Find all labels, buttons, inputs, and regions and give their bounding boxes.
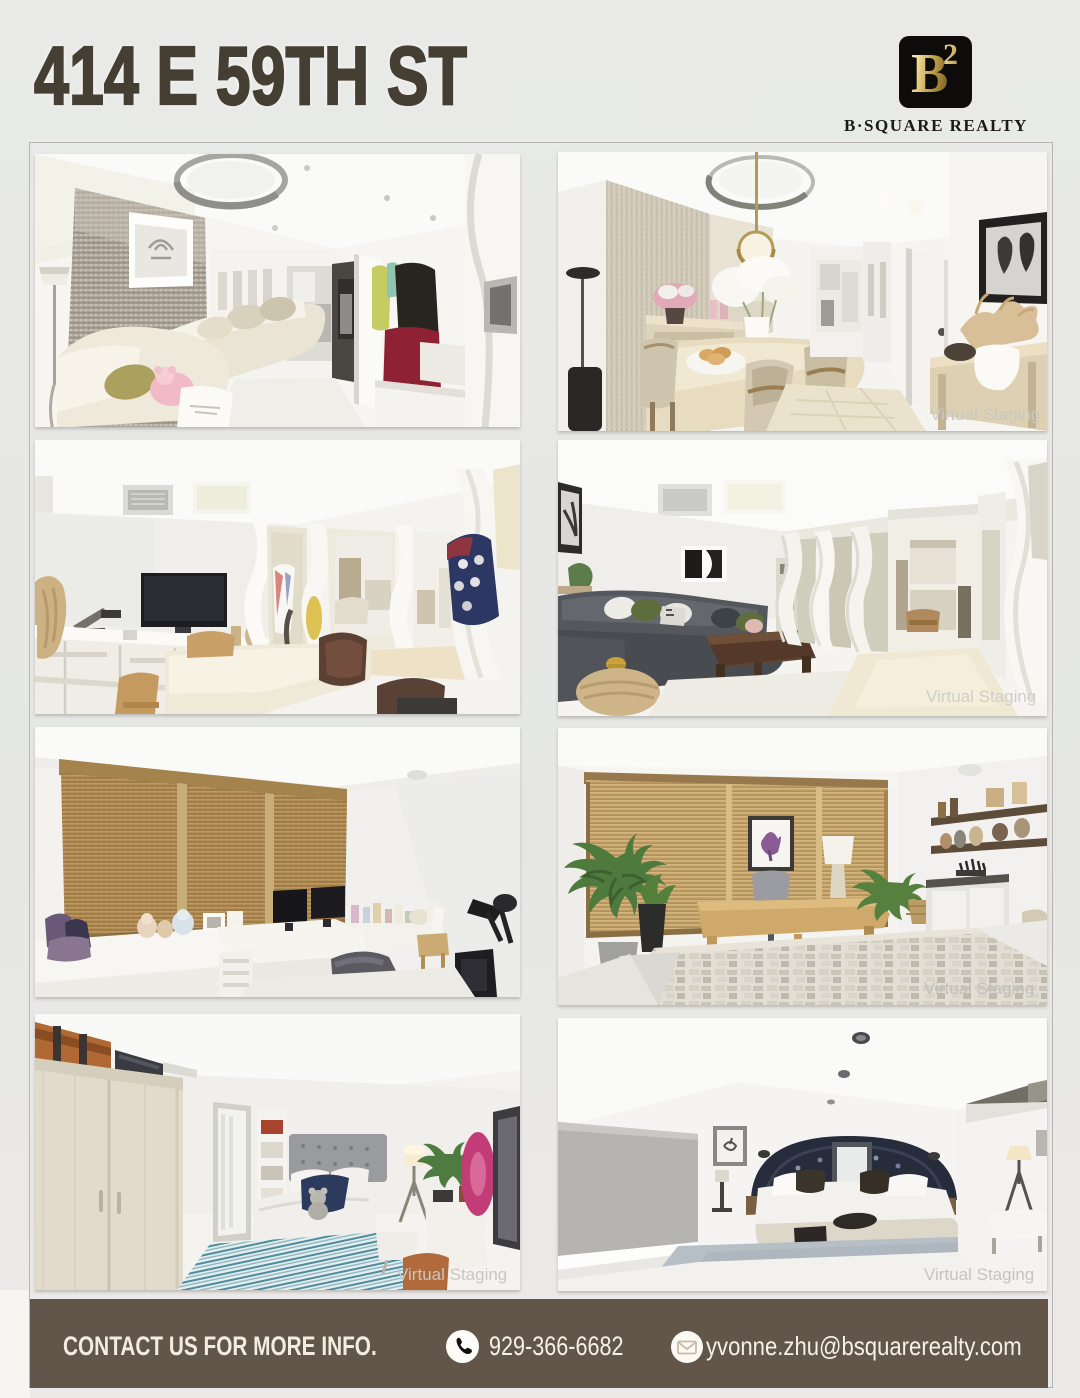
svg-text:Virtual Staging: Virtual Staging [397, 1265, 507, 1284]
svg-text:Virtual Staging: Virtual Staging [930, 405, 1040, 424]
svg-text:Virtual Staging: Virtual Staging [926, 687, 1036, 706]
svg-text:Virtual Staging: Virtual Staging [924, 979, 1034, 998]
svg-text:Virtual Staging: Virtual Staging [924, 1265, 1034, 1284]
